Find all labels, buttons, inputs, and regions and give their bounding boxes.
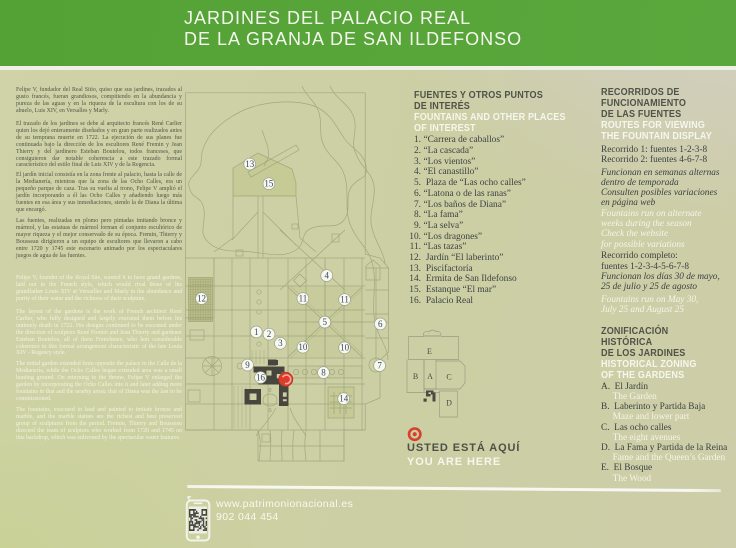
svg-text:16: 16 xyxy=(256,372,266,382)
svg-text:8: 8 xyxy=(321,368,326,378)
svg-text:13: 13 xyxy=(245,159,255,169)
svg-text:14: 14 xyxy=(339,394,349,404)
svg-text:12: 12 xyxy=(197,294,206,304)
svg-text:3: 3 xyxy=(278,338,283,348)
svg-text:A: A xyxy=(427,372,433,381)
svg-text:4: 4 xyxy=(324,271,329,281)
svg-text:10: 10 xyxy=(340,343,350,353)
svg-text:10: 10 xyxy=(298,342,308,352)
svg-text:5: 5 xyxy=(323,317,328,327)
svg-text:9: 9 xyxy=(245,360,250,370)
svg-text:11: 11 xyxy=(299,294,308,304)
svg-text:6: 6 xyxy=(378,319,383,329)
svg-text:11: 11 xyxy=(340,295,349,305)
svg-text:15: 15 xyxy=(264,179,274,189)
svg-text:B: B xyxy=(413,372,418,381)
svg-text:D: D xyxy=(446,399,452,408)
svg-text:2: 2 xyxy=(267,329,272,339)
svg-text:E: E xyxy=(427,347,432,356)
svg-text:1: 1 xyxy=(254,327,259,337)
svg-text:C: C xyxy=(446,373,451,382)
svg-text:7: 7 xyxy=(377,361,382,371)
